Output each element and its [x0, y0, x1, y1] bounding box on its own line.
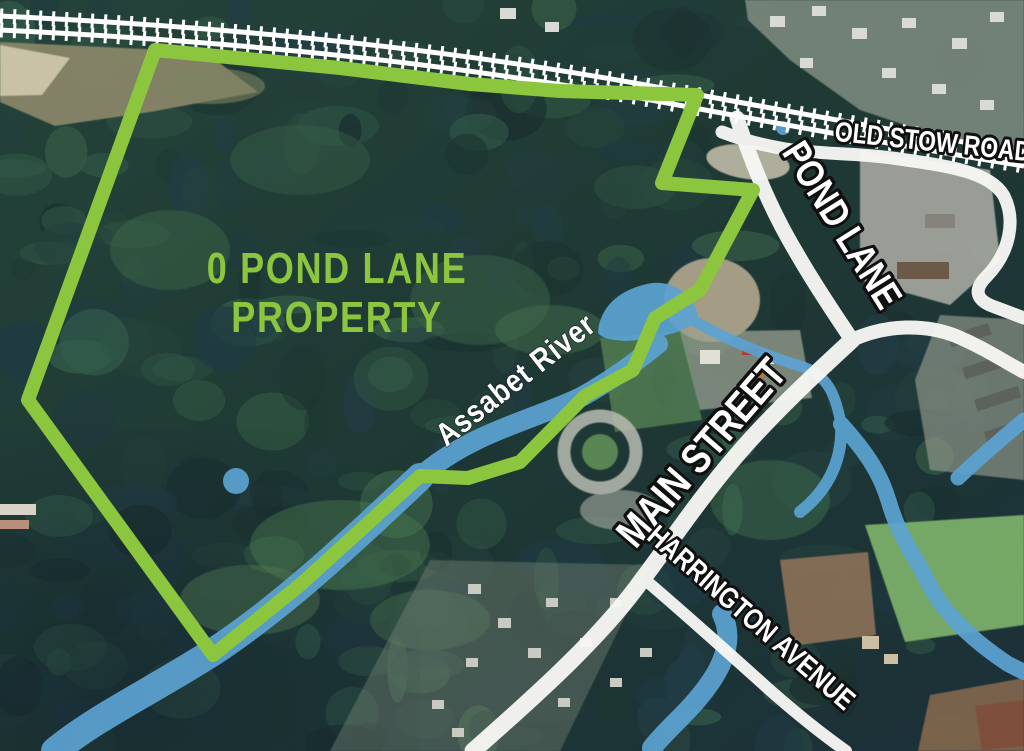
property-label-line2: PROPERTY — [231, 293, 443, 342]
map-canvas: 0 POND LANE PROPERTY Assabet River OLD S… — [0, 0, 1024, 751]
property-label: 0 POND LANE PROPERTY — [207, 244, 468, 342]
small-pond — [223, 468, 249, 494]
property-label-line1: 0 POND LANE — [207, 244, 468, 293]
aerial-map: 0 POND LANE PROPERTY Assabet River OLD S… — [0, 0, 1024, 751]
